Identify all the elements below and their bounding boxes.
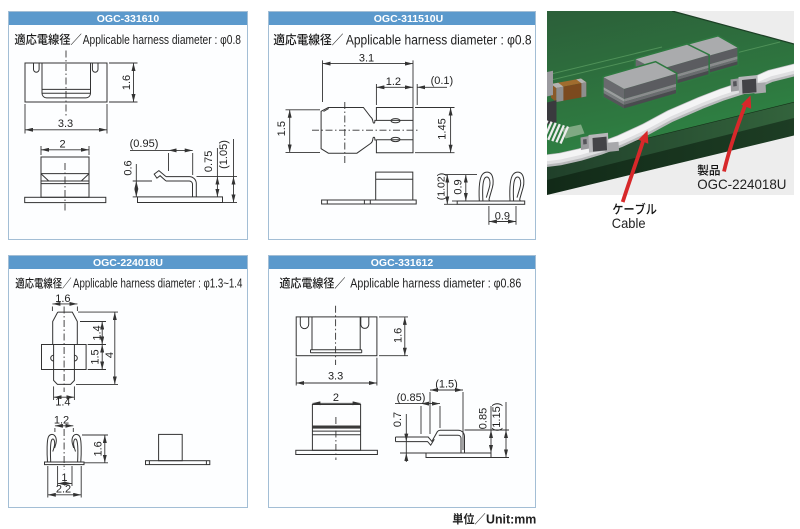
svg-text:(0.95): (0.95) (130, 138, 159, 150)
svg-text:(1.5): (1.5) (435, 379, 458, 391)
svg-text:Applicable harness diameter :: Applicable harness diameter : φ0.8 (83, 32, 241, 47)
svg-text:0.85: 0.85 (478, 408, 490, 429)
svg-text:1.6: 1.6 (393, 328, 405, 343)
svg-text:1.6: 1.6 (121, 75, 133, 90)
svg-text:1.5: 1.5 (89, 349, 101, 364)
svg-text:(1.05): (1.05) (218, 140, 230, 169)
svg-text:OGC-224018U: OGC-224018U (697, 176, 786, 192)
svg-text:Applicable harness diameter :: Applicable harness diameter : φ0.8 (346, 32, 532, 47)
svg-text:(1.02): (1.02) (435, 173, 447, 200)
svg-text:0.7: 0.7 (392, 412, 404, 427)
svg-text:2: 2 (333, 392, 339, 404)
svg-text:4: 4 (104, 352, 116, 358)
svg-text:1.4: 1.4 (55, 396, 70, 408)
svg-text:Applicable harness diameter :: Applicable harness diameter : φ1.3~1.4 (73, 276, 242, 291)
svg-text:2: 2 (59, 138, 65, 150)
svg-text:(0.1): (0.1) (431, 75, 454, 87)
svg-text:Cable: Cable (612, 215, 646, 231)
svg-text:1.4: 1.4 (92, 325, 104, 340)
svg-text:1.5: 1.5 (276, 121, 288, 136)
svg-text:1.2: 1.2 (54, 415, 69, 427)
svg-text:1.2: 1.2 (386, 76, 401, 88)
svg-text:Applicable harness diameter :: Applicable harness diameter : φ0.86 (350, 276, 521, 291)
svg-text:(0.85): (0.85) (397, 392, 426, 404)
svg-text:Unit:mm: Unit:mm (486, 512, 536, 526)
svg-text:1.6: 1.6 (93, 441, 105, 456)
svg-text:0.9: 0.9 (495, 210, 510, 222)
svg-text:3.1: 3.1 (359, 52, 374, 64)
svg-text:1.45: 1.45 (437, 118, 449, 139)
svg-text:0.9: 0.9 (452, 179, 464, 194)
svg-text:0.6: 0.6 (122, 160, 134, 175)
svg-text:3.3: 3.3 (328, 370, 343, 382)
svg-text:2.2: 2.2 (56, 483, 71, 495)
svg-text:0.75: 0.75 (203, 151, 215, 172)
svg-text:1.6: 1.6 (55, 293, 70, 305)
svg-text:3.3: 3.3 (58, 118, 73, 130)
svg-text:(1.15): (1.15) (491, 403, 503, 432)
